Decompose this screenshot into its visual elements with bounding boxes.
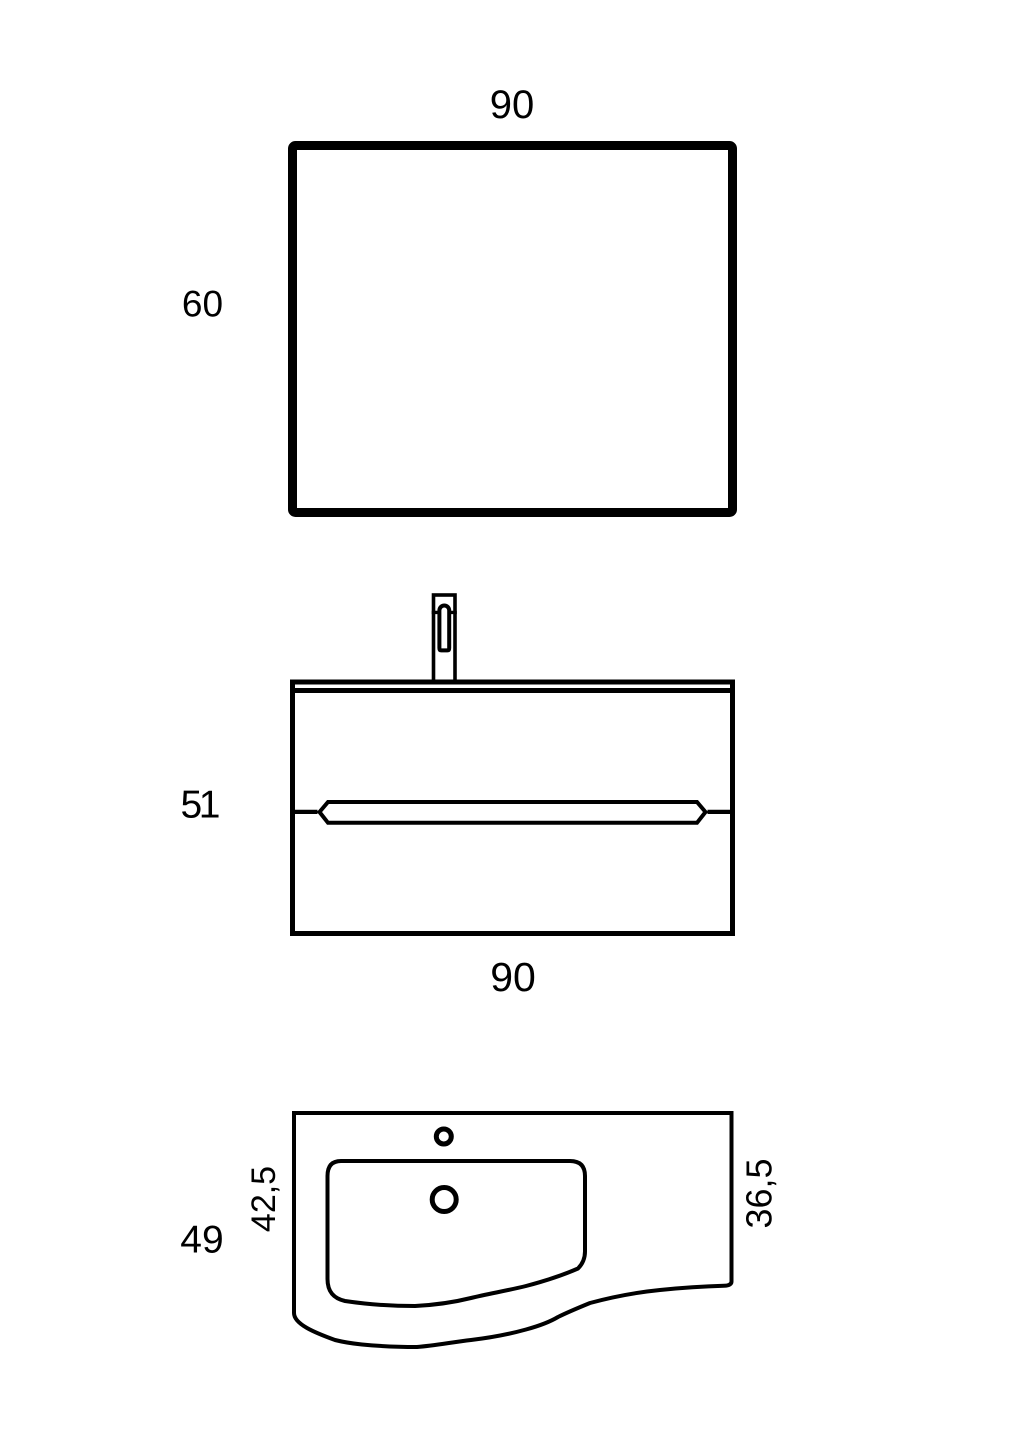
svg-text:90: 90 — [490, 83, 535, 127]
svg-text:49: 49 — [180, 1219, 223, 1262]
svg-text:36,5: 36,5 — [739, 1158, 780, 1228]
svg-text:42,5: 42,5 — [245, 1166, 283, 1232]
svg-text:51: 51 — [181, 784, 221, 827]
svg-text:90: 90 — [490, 954, 536, 1000]
svg-text:60: 60 — [182, 284, 223, 325]
